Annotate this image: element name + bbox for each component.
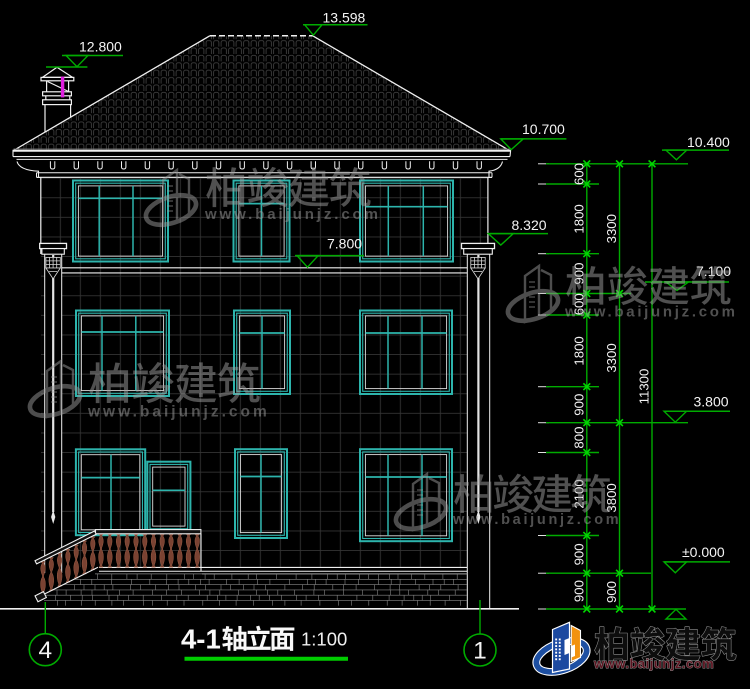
svg-text:1800: 1800 [571,204,586,233]
svg-text:www.baijunjz.com: www.baijunjz.com [204,206,381,223]
svg-text:4: 4 [38,637,52,664]
svg-text:900: 900 [571,394,586,416]
svg-text:800: 800 [571,427,586,449]
svg-text:www.baijunjz.com: www.baijunjz.com [564,304,738,321]
svg-text:1800: 1800 [571,336,586,365]
svg-text:4-1: 4-1 [181,624,221,655]
svg-text:900: 900 [604,581,619,603]
svg-text:3300: 3300 [604,343,619,372]
svg-text:3300: 3300 [604,214,619,243]
svg-text:www.baijunjz.com: www.baijunjz.com [87,404,270,421]
svg-text:600: 600 [571,163,586,185]
svg-text:1:100: 1:100 [301,629,347,650]
svg-text:www.baijunjz.com: www.baijunjz.com [452,512,621,528]
svg-text:3800: 3800 [604,483,619,512]
svg-text:1: 1 [473,637,487,664]
svg-text:7.800: 7.800 [327,235,362,251]
svg-text:900: 900 [571,580,586,602]
svg-text:900: 900 [571,543,586,565]
svg-text:8.320: 8.320 [512,217,547,233]
svg-text:13.598: 13.598 [323,10,366,26]
svg-text:10.400: 10.400 [687,134,730,150]
svg-text:www.baijunjz.com: www.baijunjz.com [593,656,714,671]
svg-text:12.800: 12.800 [79,39,122,55]
svg-text:3.800: 3.800 [694,393,729,409]
svg-text:±0.000: ±0.000 [682,544,725,560]
svg-text:10.700: 10.700 [522,121,565,137]
svg-text:11300: 11300 [636,369,651,405]
